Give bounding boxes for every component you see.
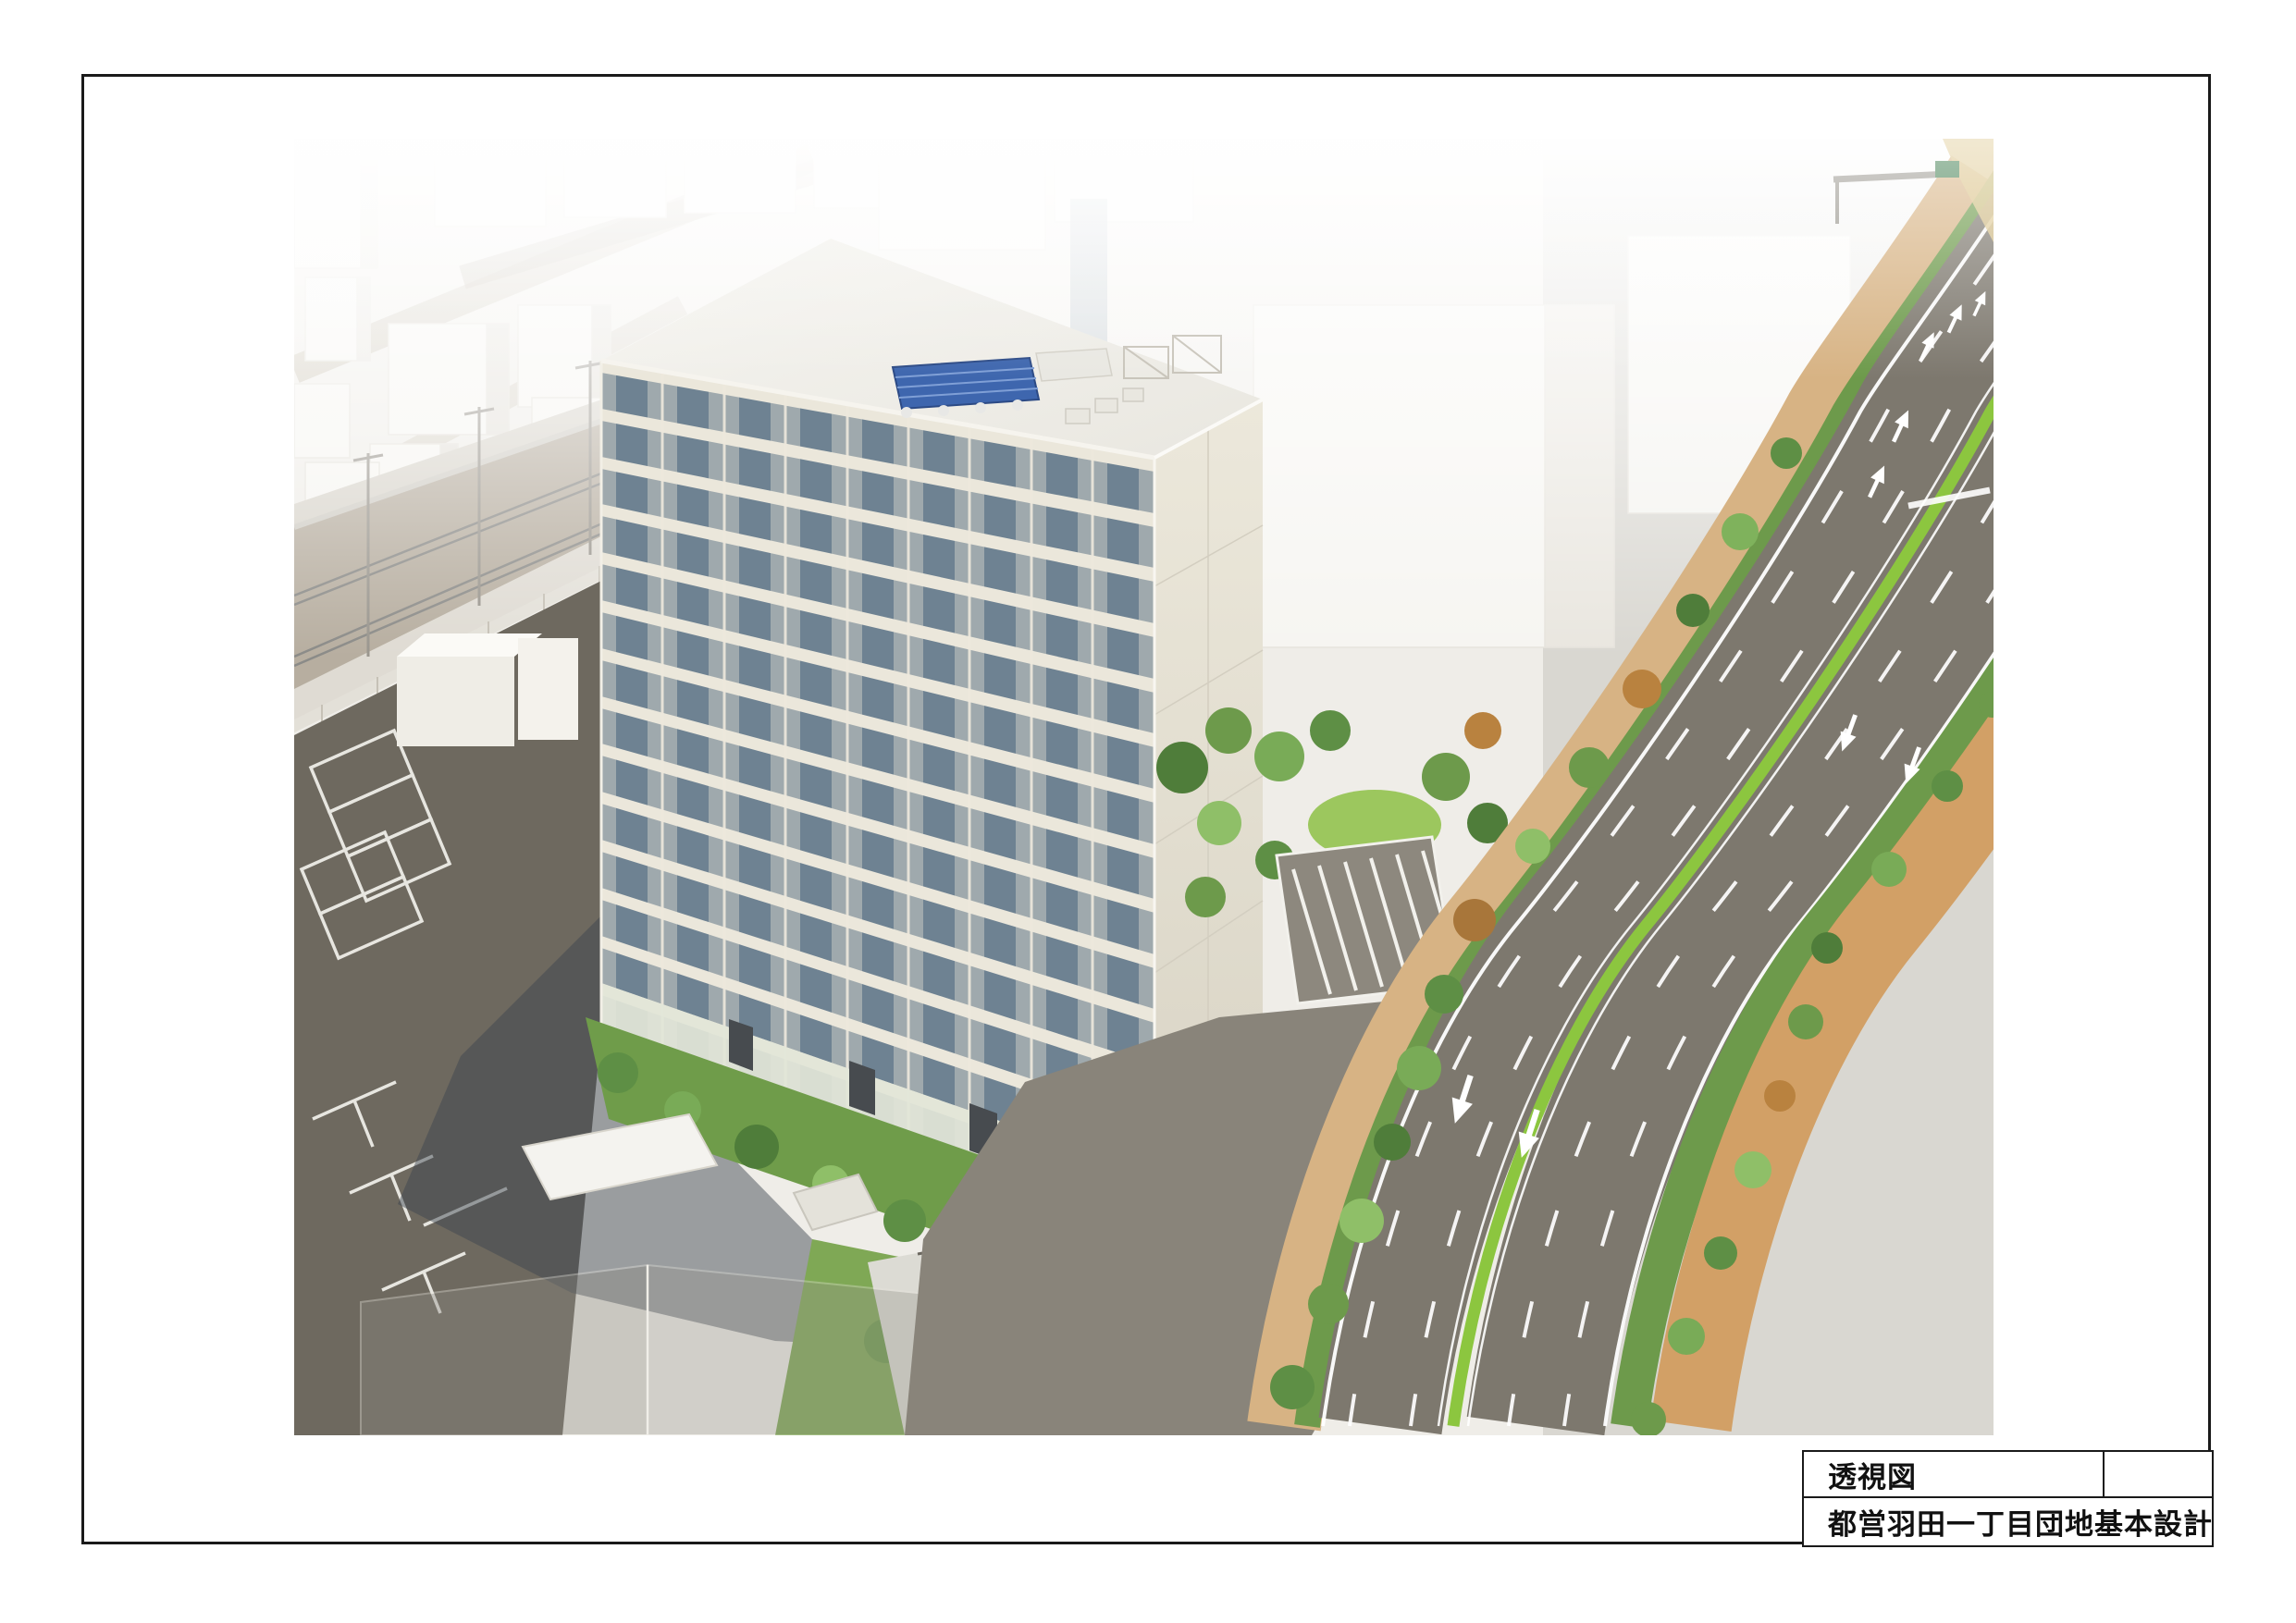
drawing-title: 透視図 [1828,1454,1917,1495]
utility-sheds [397,633,578,746]
title-block: 透視図 都営羽田一丁目団地基本設計 [1802,1450,2214,1547]
project-name-cell: 都営羽田一丁目団地基本設計 [1802,1496,2214,1547]
perspective-rendering [294,139,1994,1435]
top-fade-overlay [294,139,1994,379]
project-name: 都営羽田一丁目団地基本設計 [1828,1501,2213,1543]
translucent-site-walls [361,1265,981,1435]
rendering-image [294,139,1994,1435]
title-block-row1: 透視図 [1802,1450,2214,1498]
title-block-empty-cell [2105,1452,2212,1496]
drawing-sheet: 透視図 都営羽田一丁目団地基本設計 [0,0,2296,1623]
drawing-title-cell: 透視図 [1804,1452,2105,1496]
